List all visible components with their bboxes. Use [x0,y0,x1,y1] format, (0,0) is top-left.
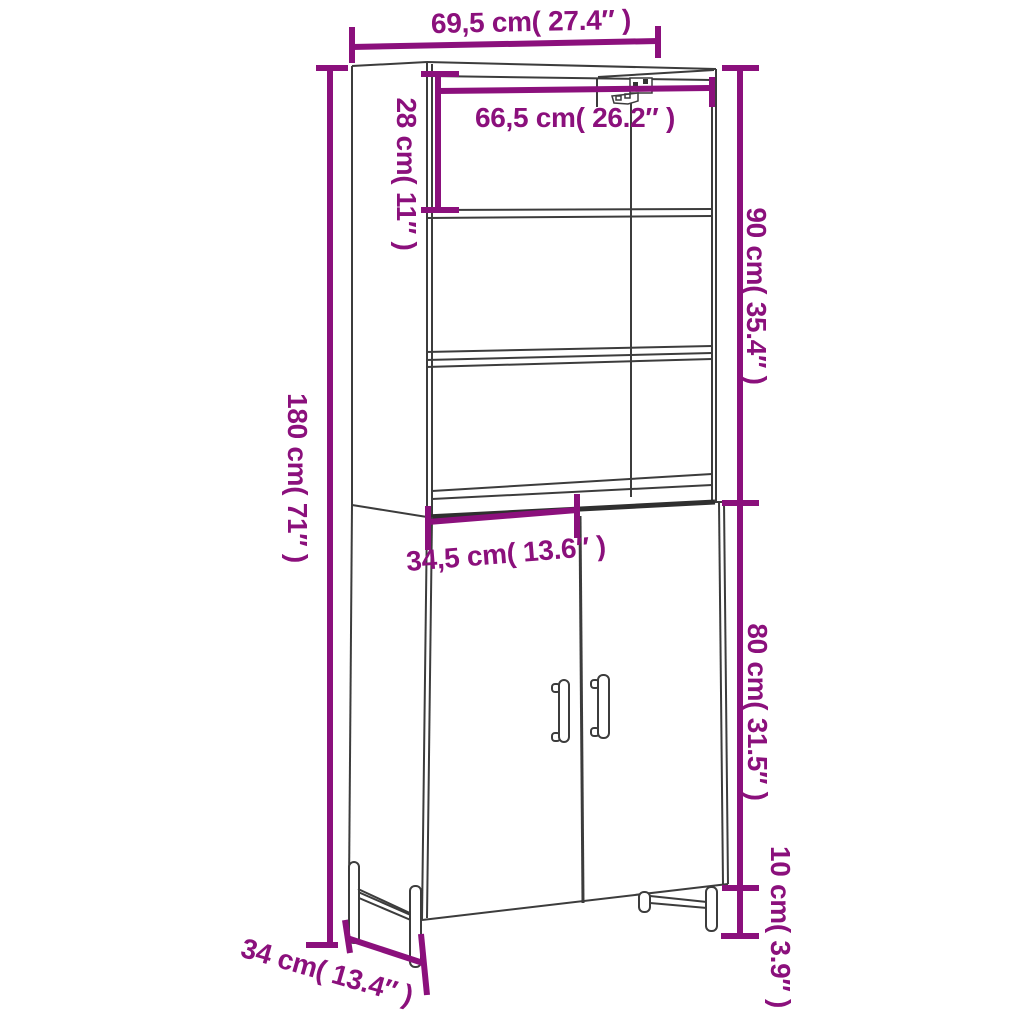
cabinet-line-drawing [0,0,1024,1024]
dimension-diagram: 69,5 cm( 27.4″ ) 66,5 cm( 26.2″ ) 28 cm(… [0,0,1024,1024]
dim-line-inner-width [438,77,712,107]
front-right-leg [706,887,717,931]
front-left-leg [410,886,421,967]
lower-unit-outline [349,502,728,920]
back-left-leg [349,862,359,943]
cabinet-legs [349,862,717,967]
dim-line-leg-height [721,888,759,936]
upper-unit-outline [352,62,716,517]
dim-line-door-width [428,494,577,550]
left-door-handle [559,680,569,742]
back-right-leg [639,892,650,912]
dim-line-upper-height [722,68,759,503]
door-gap-line [580,516,583,903]
right-door-handle [598,675,609,738]
dim-line-top-width [352,26,658,63]
dim-line-total-height [306,68,348,945]
